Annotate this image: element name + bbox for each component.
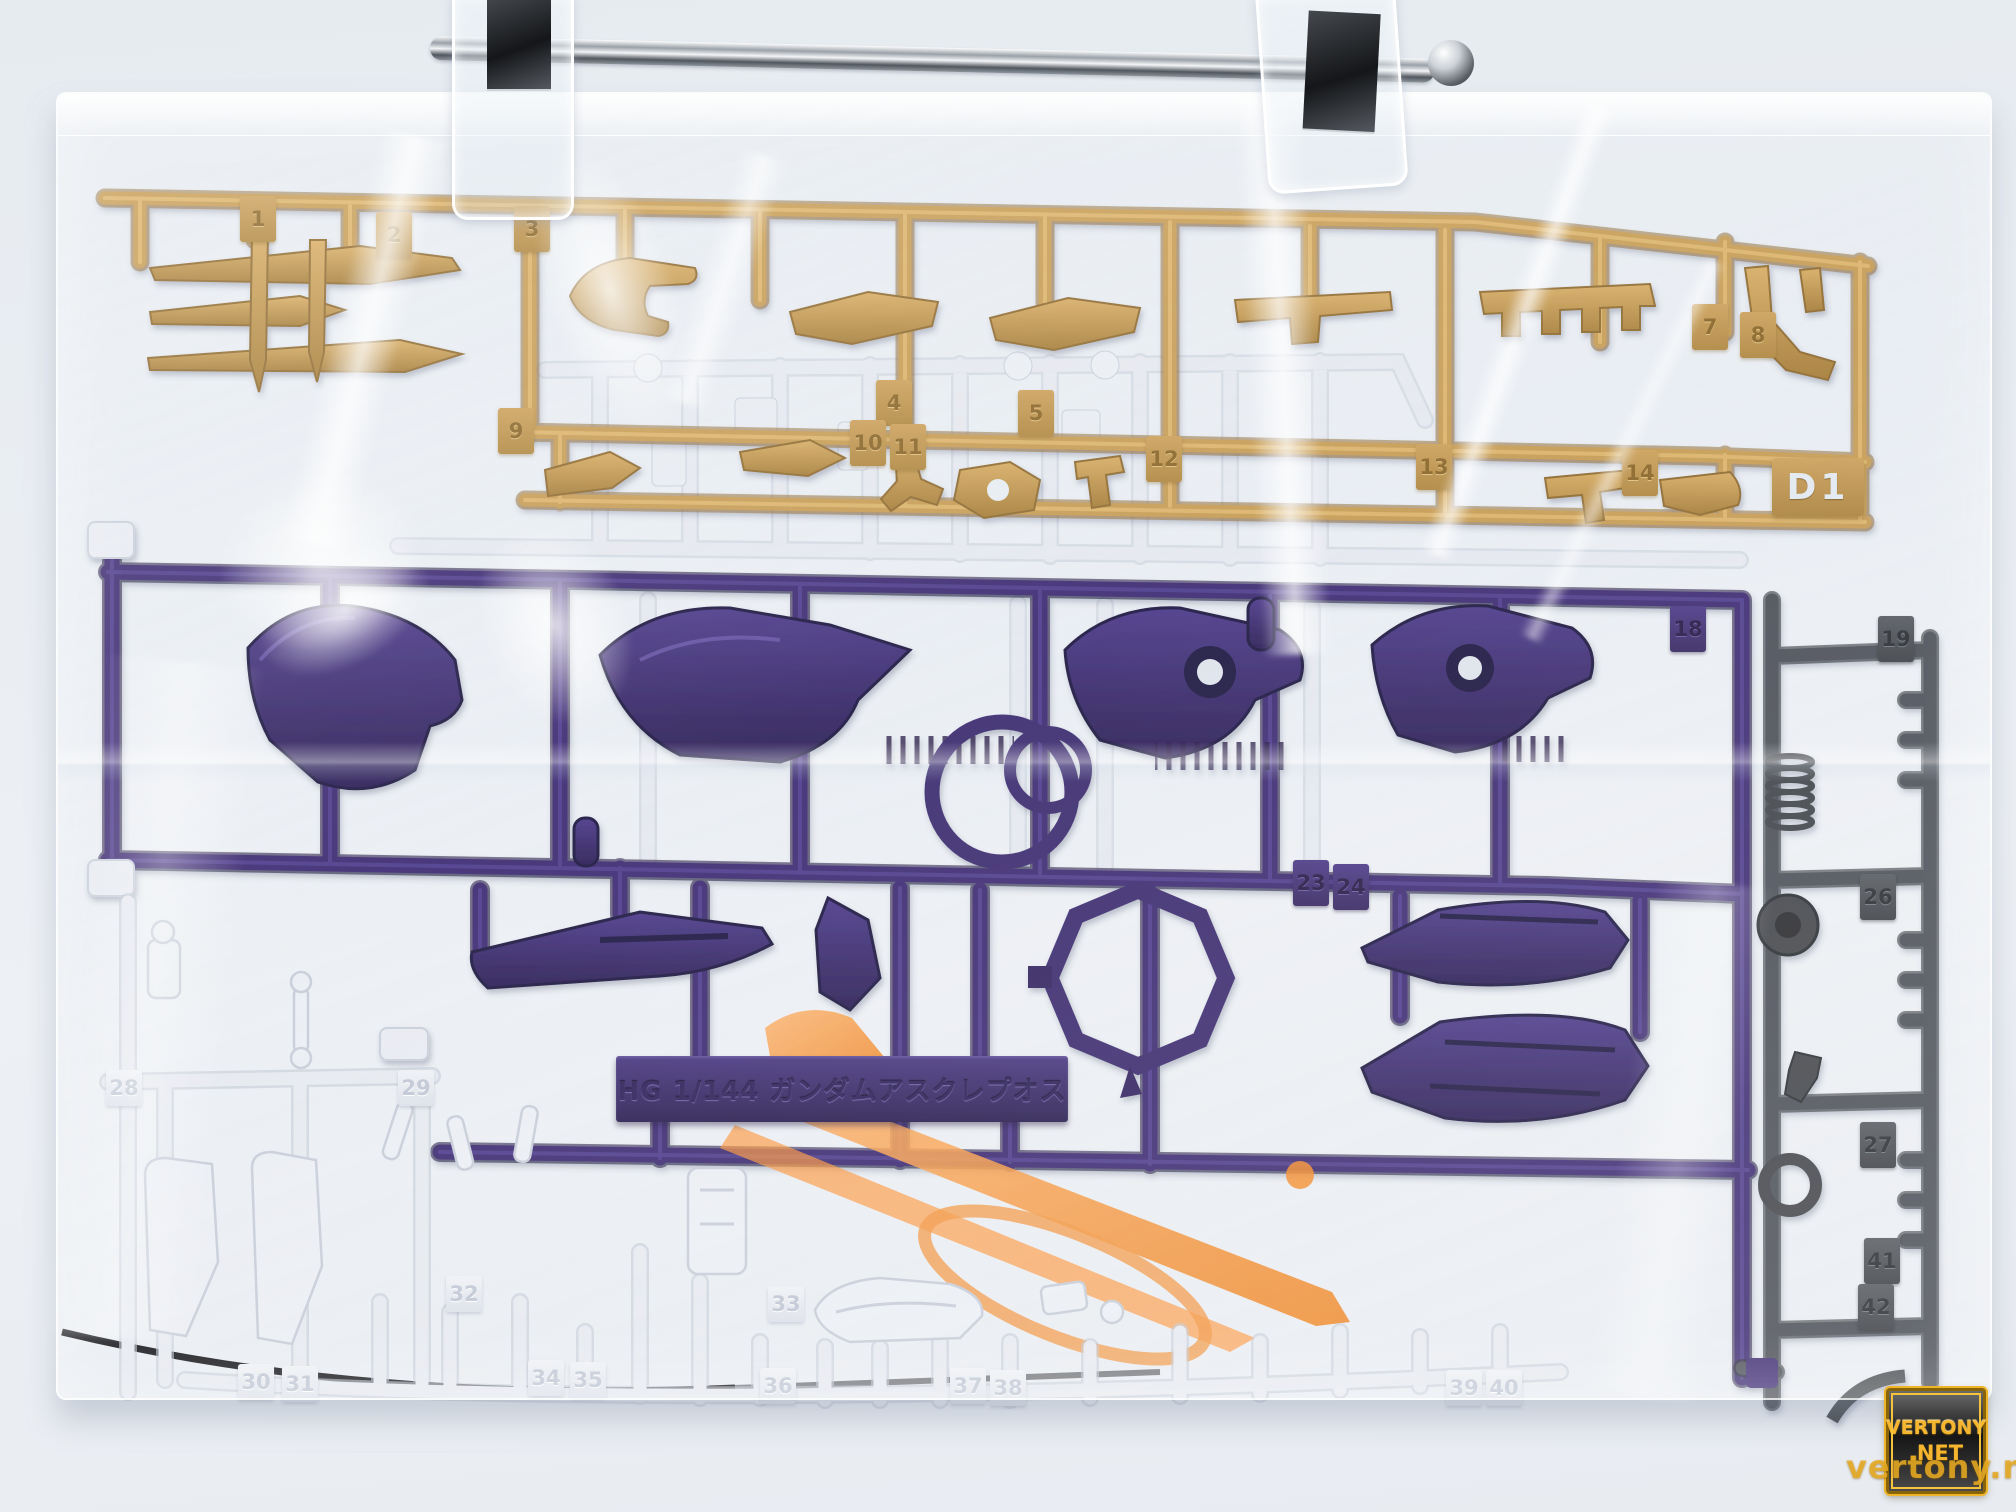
part-number-tab: 7 [1692,304,1728,350]
purple-runner [88,522,1748,1378]
part-number-tab: 32 [446,1276,482,1312]
part-number-tab: 34 [528,1360,564,1396]
part-number-tab: 29 [398,1070,434,1106]
part-number-tab: 30 [238,1364,274,1400]
coil-spring [1768,756,1812,828]
runner-letter-tag: D1 [1772,458,1864,516]
part-number-tab: 23 [1293,860,1329,906]
part-number-tab: 38 [990,1370,1026,1406]
part-number-tab: 31 [282,1366,318,1402]
part-number-tab: 5 [1018,390,1054,436]
watermark-url-text: vertony.net [1846,1448,2016,1486]
part-number-tab: 10 [850,420,886,466]
kit-nameplate: HG 1/144 ガンダムアスクレプオス [616,1056,1068,1122]
part-number-tab: 35 [570,1362,606,1398]
part-number-tab: 13 [1416,444,1452,490]
part-number-tab: 40 [1486,1370,1522,1406]
clear-hanger-clip-right [1255,0,1408,195]
clip-spring-plate [487,0,551,89]
part-number-tab: 2 [376,212,412,258]
part-number-tab: 41 [1864,1238,1900,1284]
rod-ball-end [1428,40,1474,86]
clear-hanger-clip-left [452,0,574,220]
part-number-tab: 37 [950,1368,986,1404]
part-number-tab: 28 [106,1070,142,1106]
part-number-tab: 1 [240,196,276,242]
part-number-tab: 24 [1333,864,1369,910]
photo-gundam-runner-bag: 1 2 3 4 5 7 8 9 10 11 12 13 14 18 23 24 … [0,0,2016,1512]
part-number-tab: 12 [1146,436,1182,482]
part-number-tab: 36 [760,1368,796,1404]
part-number-tab: 26 [1860,874,1896,920]
runner-sprues [0,0,2016,1512]
part-number-tab: 33 [768,1286,804,1322]
part-number-tab: 8 [1740,312,1776,358]
kit-nameplate-text: HG 1/144 ガンダムアスクレプオス [617,1071,1066,1108]
part-number-tab: 11 [890,424,926,470]
part-number-tab: 42 [1858,1284,1894,1330]
part-number-tab: 27 [1860,1122,1896,1168]
gray-runner [1742,600,1930,1420]
watermark-title: VERTONY [1886,1417,1986,1439]
clip-spring-plate [1303,10,1381,132]
part-number-tab: 19 [1878,616,1914,662]
part-number-tab: 14 [1622,450,1658,496]
white-joint-clips [88,522,428,1060]
part-number-tab: 18 [1670,606,1706,652]
part-number-tab: 9 [498,408,534,454]
part-number-tab: 39 [1446,1370,1482,1406]
